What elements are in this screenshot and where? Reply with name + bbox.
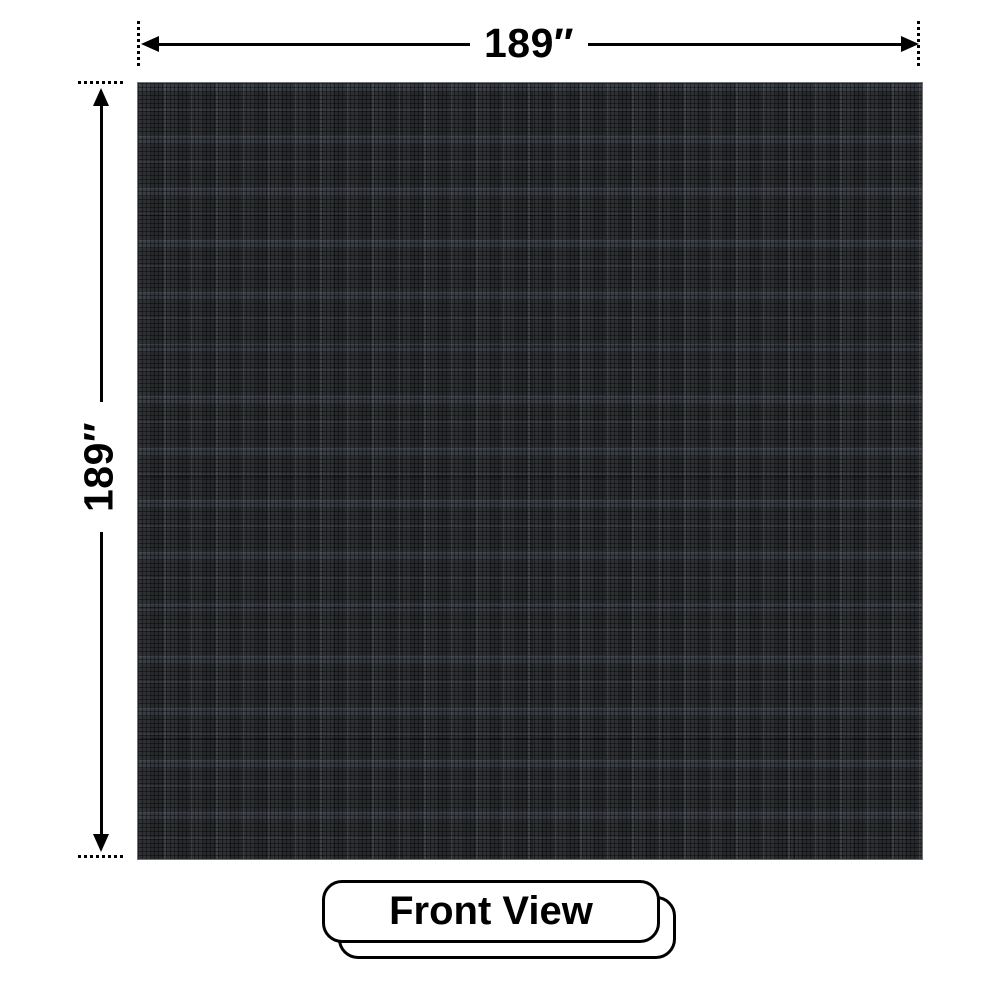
height-extension-line-top <box>78 81 124 84</box>
left-arrowhead-icon <box>141 36 159 52</box>
height-dimension-line-bottom-segment <box>100 532 103 837</box>
up-arrowhead-icon <box>93 88 109 106</box>
led-panel-front-face <box>138 83 922 859</box>
width-dimension-label: 189″ <box>469 20 589 66</box>
view-label-text: Front View <box>389 889 593 934</box>
down-arrowhead-icon <box>93 834 109 852</box>
width-extension-line-left <box>137 21 140 68</box>
height-dimension-line-top-segment <box>100 100 103 402</box>
height-extension-line-bottom <box>78 855 124 858</box>
diagram-canvas: 189″ 189″ Front View <box>0 0 1000 1000</box>
width-dimension-line-left-segment <box>156 43 470 46</box>
height-dimension-label: 189″ <box>76 422 123 512</box>
width-dimension-line-right-segment <box>588 43 902 46</box>
view-label-card: Front View <box>322 880 660 943</box>
right-arrowhead-icon <box>901 36 919 52</box>
